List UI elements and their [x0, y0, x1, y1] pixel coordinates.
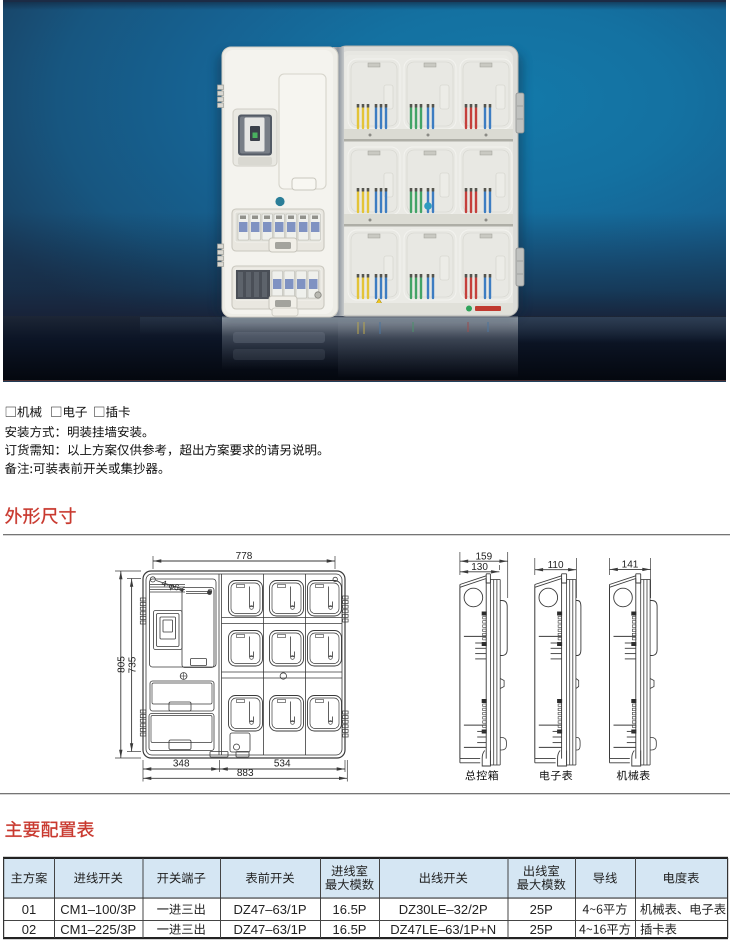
svg-text:25P: 25P [530, 902, 553, 917]
svg-text:883: 883 [237, 768, 254, 779]
svg-text:141: 141 [622, 560, 639, 571]
svg-text:CM1–100/3P: CM1–100/3P [60, 902, 136, 917]
svg-text:16.5P: 16.5P [333, 922, 367, 937]
svg-text:778: 778 [236, 551, 253, 562]
svg-text:4-φ6: 4-φ6 [160, 578, 180, 593]
svg-text:348: 348 [173, 759, 190, 770]
svg-text:534: 534 [274, 759, 291, 770]
svg-text:02: 02 [22, 922, 36, 937]
svg-text:DZ30LE–32/2P: DZ30LE–32/2P [399, 902, 488, 917]
svg-text:25P: 25P [530, 922, 553, 937]
svg-text:DZ47LE–63/1P+N: DZ47LE–63/1P+N [390, 922, 496, 937]
svg-text:01: 01 [22, 902, 36, 917]
svg-text:130: 130 [471, 562, 488, 573]
svg-text:735: 735 [127, 656, 138, 673]
svg-text:CM1–225/3P: CM1–225/3P [60, 922, 136, 937]
svg-text:805: 805 [117, 656, 128, 673]
svg-text:159: 159 [475, 551, 492, 562]
svg-text:DZ47–63/1P: DZ47–63/1P [234, 902, 307, 917]
svg-text:DZ47–63/1P: DZ47–63/1P [234, 922, 307, 937]
svg-text:110: 110 [548, 560, 564, 571]
svg-text:16.5P: 16.5P [333, 902, 367, 917]
